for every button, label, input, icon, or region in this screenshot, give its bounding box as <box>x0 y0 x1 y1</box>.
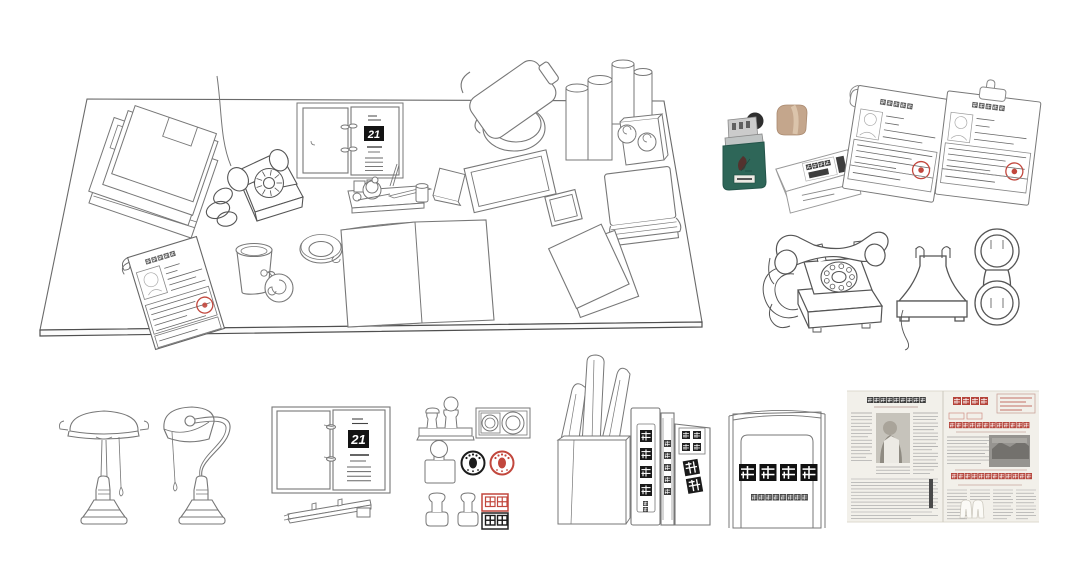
svg-text:21: 21 <box>367 129 380 141</box>
svg-text:21: 21 <box>350 432 365 447</box>
